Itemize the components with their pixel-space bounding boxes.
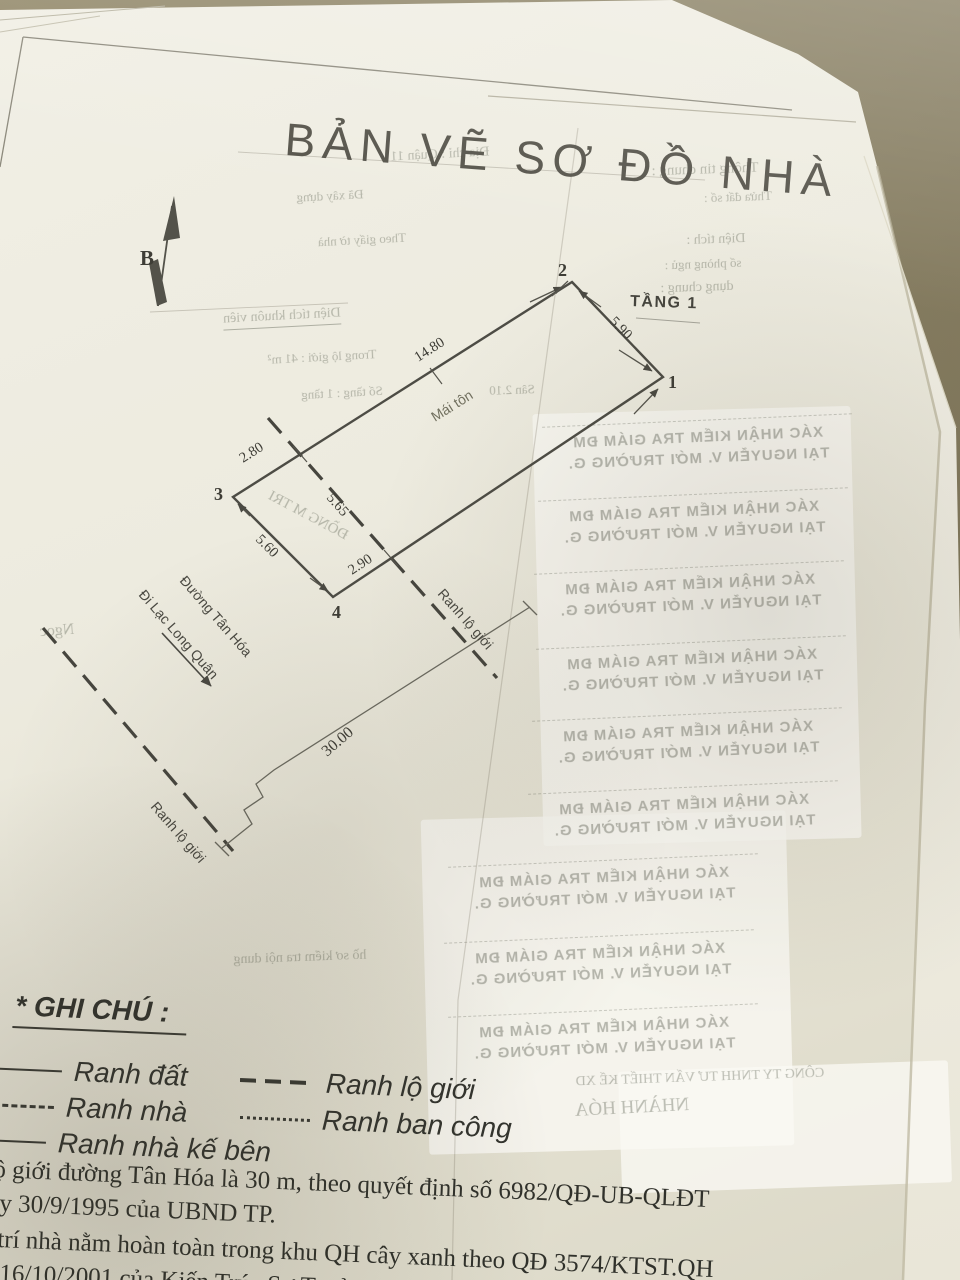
dimension-ticks — [293, 281, 568, 566]
legend-swatch-heavy-dash — [240, 1078, 314, 1086]
legend-label: Ranh đất — [73, 1056, 188, 1093]
corner-label-2: 2 — [558, 260, 567, 280]
corner-label-3: 3 — [214, 484, 223, 504]
dimension-side-lower-road: 2.90 — [345, 551, 375, 578]
road-boundary-label-lower: Ranh lộ giới — [148, 798, 210, 865]
roof-label: Mái tôn — [428, 387, 475, 425]
legend-label: Ranh nhà — [65, 1092, 188, 1129]
parcel-outline — [233, 282, 663, 597]
legend-swatch-dashed — [0, 1103, 54, 1109]
photo-of-site-plan-document: Thông tin chung :Thửa đất số :Diện tích … — [0, 0, 960, 1280]
legend-swatch-solid — [0, 1139, 46, 1144]
legend-swatch-dotted — [240, 1116, 310, 1122]
legend-swatch-solid — [0, 1067, 62, 1072]
legend-heading: * GHI CHÚ : — [12, 990, 187, 1036]
floor-label: TẦNG 1 — [630, 291, 698, 312]
dimension-back: 5.60 — [252, 532, 281, 561]
north-arrow: B — [140, 196, 180, 306]
north-label: B — [140, 246, 154, 270]
corner-label-4: 4 — [332, 602, 341, 622]
dimension-road-cut: 5.65 — [323, 490, 352, 520]
legend-label: Ranh lộ giới — [325, 1068, 475, 1106]
corner-label-1: 1 — [668, 372, 677, 392]
dimension-front: 5.90 — [606, 314, 635, 343]
dimension-side-upper-road: 2.80 — [237, 439, 267, 466]
dimension-side-upper: 14.80 — [412, 334, 448, 365]
floor-label-underline — [636, 318, 700, 323]
corner-leader-arrows — [238, 287, 658, 591]
